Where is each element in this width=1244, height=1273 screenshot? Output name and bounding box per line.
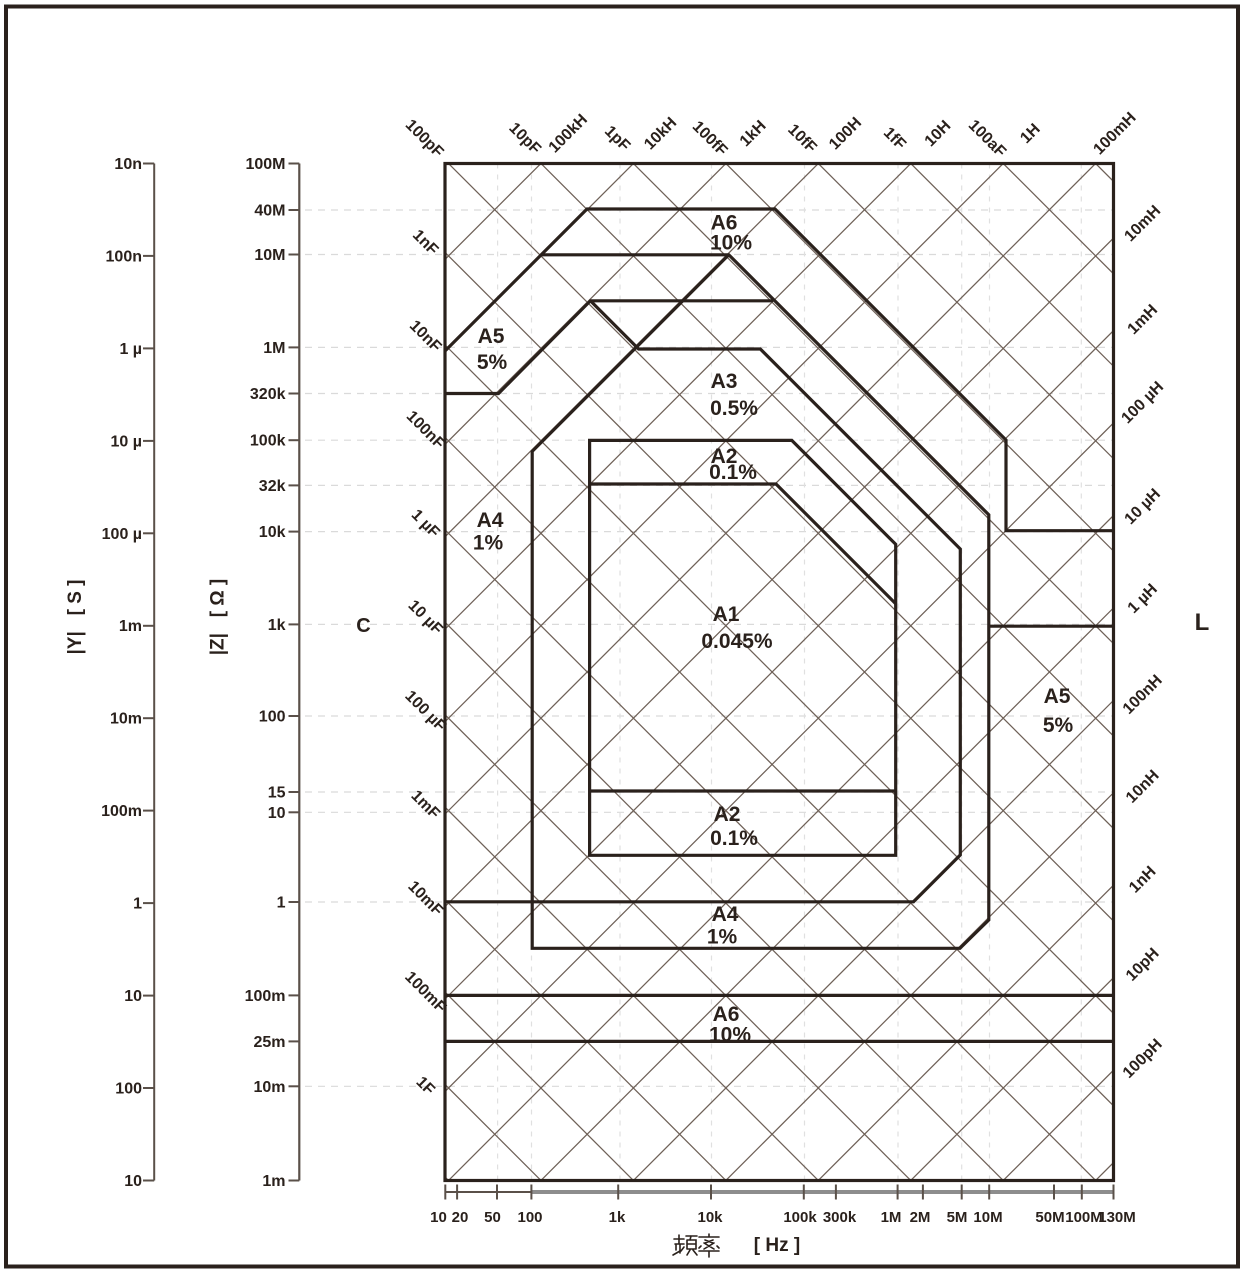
svg-text:100M: 100M xyxy=(245,156,285,173)
svg-text:1M: 1M xyxy=(881,1209,902,1226)
svg-text:32k: 32k xyxy=(259,478,286,495)
svg-text:A4: A4 xyxy=(712,903,739,926)
svg-text:A4: A4 xyxy=(477,509,504,532)
svg-text:100k: 100k xyxy=(250,433,286,450)
svg-text:20: 20 xyxy=(452,1209,469,1226)
svg-text:50M: 50M xyxy=(1035,1209,1064,1226)
svg-text:10: 10 xyxy=(124,1173,142,1190)
svg-text:320k: 320k xyxy=(250,386,286,403)
svg-text:10: 10 xyxy=(430,1209,447,1226)
svg-text:1: 1 xyxy=(133,896,142,913)
svg-text:1: 1 xyxy=(277,895,286,912)
svg-text:100n: 100n xyxy=(106,248,142,265)
svg-text:5%: 5% xyxy=(477,351,508,374)
svg-text:10%: 10% xyxy=(710,232,752,255)
svg-text:10m: 10m xyxy=(110,711,142,728)
svg-text:0.1%: 0.1% xyxy=(710,827,758,850)
svg-text:A1: A1 xyxy=(713,603,740,626)
svg-text:10: 10 xyxy=(124,988,142,1005)
svg-text:130M: 130M xyxy=(1098,1209,1136,1226)
svg-text:100M: 100M xyxy=(1065,1209,1103,1226)
svg-text:1 µ: 1 µ xyxy=(119,341,142,358)
svg-text:10%: 10% xyxy=(709,1024,751,1047)
svg-text:100m: 100m xyxy=(245,988,286,1005)
svg-text:A5: A5 xyxy=(1044,685,1071,708)
svg-text:2M: 2M xyxy=(910,1209,931,1226)
svg-text:10: 10 xyxy=(268,805,286,822)
svg-text:1m: 1m xyxy=(262,1173,285,1190)
svg-text:300k: 300k xyxy=(823,1209,857,1226)
svg-text:10n: 10n xyxy=(114,156,142,173)
svg-text:10 µ: 10 µ xyxy=(111,433,142,450)
svg-text:100: 100 xyxy=(517,1209,542,1226)
svg-text:100: 100 xyxy=(115,1081,142,1098)
svg-text:A5: A5 xyxy=(478,325,505,348)
svg-text:50: 50 xyxy=(484,1209,501,1226)
svg-text:10M: 10M xyxy=(973,1209,1002,1226)
svg-text:A2: A2 xyxy=(714,803,741,826)
svg-text:[ Hz ]: [ Hz ] xyxy=(754,1235,800,1256)
svg-text:5%: 5% xyxy=(1043,714,1074,737)
svg-text:100m: 100m xyxy=(101,803,142,820)
svg-text:0.1%: 0.1% xyxy=(709,461,757,484)
svg-text:C: C xyxy=(356,615,370,637)
svg-text:1k: 1k xyxy=(268,617,286,634)
svg-text:10M: 10M xyxy=(254,247,285,264)
svg-text:5M: 5M xyxy=(947,1209,968,1226)
svg-text:15: 15 xyxy=(268,785,286,802)
svg-text:1k: 1k xyxy=(609,1209,626,1226)
svg-text:|Y| [ S ]: |Y| [ S ] xyxy=(65,579,86,654)
svg-text:1%: 1% xyxy=(473,532,504,555)
svg-text:10k: 10k xyxy=(259,524,286,541)
svg-text:100 µ: 100 µ xyxy=(102,526,142,543)
svg-text:1m: 1m xyxy=(119,618,142,635)
svg-text:0.5%: 0.5% xyxy=(710,397,758,420)
svg-text:0.045%: 0.045% xyxy=(701,630,773,653)
svg-text:|Z| [ Ω ]: |Z| [ Ω ] xyxy=(208,579,229,656)
svg-text:100k: 100k xyxy=(783,1209,817,1226)
svg-text:10k: 10k xyxy=(697,1209,723,1226)
svg-text:10m: 10m xyxy=(253,1079,285,1096)
svg-text:A3: A3 xyxy=(711,370,738,393)
svg-text:1%: 1% xyxy=(707,926,738,949)
svg-text:1M: 1M xyxy=(263,340,285,357)
svg-text:40M: 40M xyxy=(254,203,285,220)
svg-text:25m: 25m xyxy=(253,1034,285,1051)
svg-text:L: L xyxy=(1195,609,1210,636)
svg-text:100: 100 xyxy=(259,709,286,726)
